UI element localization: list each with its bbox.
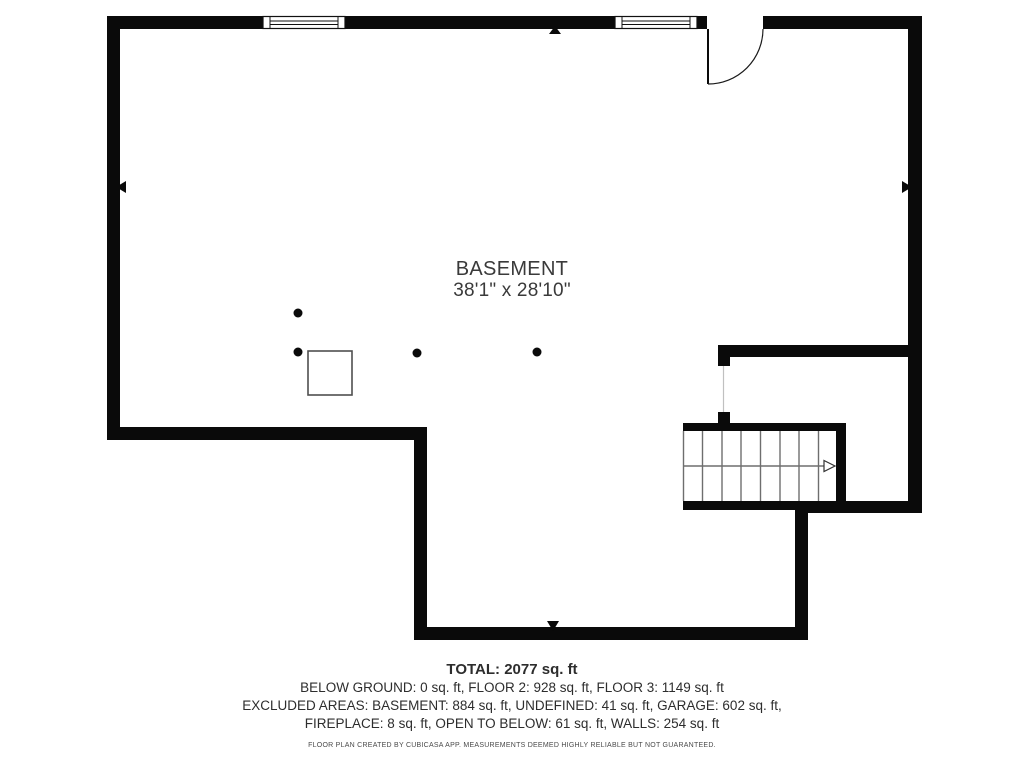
wall-stair-bottom [683, 501, 846, 510]
summary-excluded-line-1: EXCLUDED AREAS: BASEMENT: 884 sq. ft, UN… [0, 697, 1024, 715]
floor-plan-drawing [0, 0, 1024, 768]
wall-stair-right [836, 423, 846, 503]
wall-landing [718, 345, 908, 357]
room-dimensions: 38'1" x 28'10" [0, 280, 1024, 302]
summary-floors: BELOW GROUND: 0 sq. ft, FLOOR 2: 928 sq.… [0, 679, 1024, 697]
window-icon [263, 17, 345, 29]
wall-bottom [414, 627, 808, 640]
support-column-icon [294, 309, 303, 318]
floor-plan-page: BASEMENT 38'1" x 28'10" TOTAL: 2077 sq. … [0, 0, 1024, 768]
door-opening [707, 15, 763, 30]
support-columns [294, 309, 542, 358]
summary-excluded-line-2: FIREPLACE: 8 sq. ft, OPEN TO BELOW: 61 s… [0, 715, 1024, 733]
disclaimer-text: FLOOR PLAN CREATED BY CUBICASA APP. MEAS… [0, 742, 1024, 749]
wall-stub-upper [718, 345, 730, 366]
stair-direction-arrow-icon [824, 461, 835, 472]
support-column-icon [294, 348, 303, 357]
wall-middle-vertical [414, 427, 427, 640]
wall-left [107, 16, 120, 440]
area-summary: TOTAL: 2077 sq. ft BELOW GROUND: 0 sq. f… [0, 661, 1024, 733]
room-name: BASEMENT [0, 258, 1024, 280]
wall-stair-top [683, 423, 846, 431]
wall-bottom-left [107, 427, 427, 440]
wall-lower-right-vertical [795, 501, 808, 640]
door-swing-arc [708, 29, 763, 84]
door-icon [707, 15, 763, 84]
wall-top [107, 16, 922, 29]
wall-stub-lower [718, 412, 730, 424]
summary-total: TOTAL: 2077 sq. ft [0, 661, 1024, 679]
wall-markers [116, 26, 912, 631]
room-label: BASEMENT 38'1" x 28'10" [0, 258, 1024, 302]
support-column-icon [413, 349, 422, 358]
staircase [684, 431, 836, 501]
support-column-icon [533, 348, 542, 357]
square-fixture-icon [308, 351, 352, 395]
window-icon [615, 17, 697, 29]
